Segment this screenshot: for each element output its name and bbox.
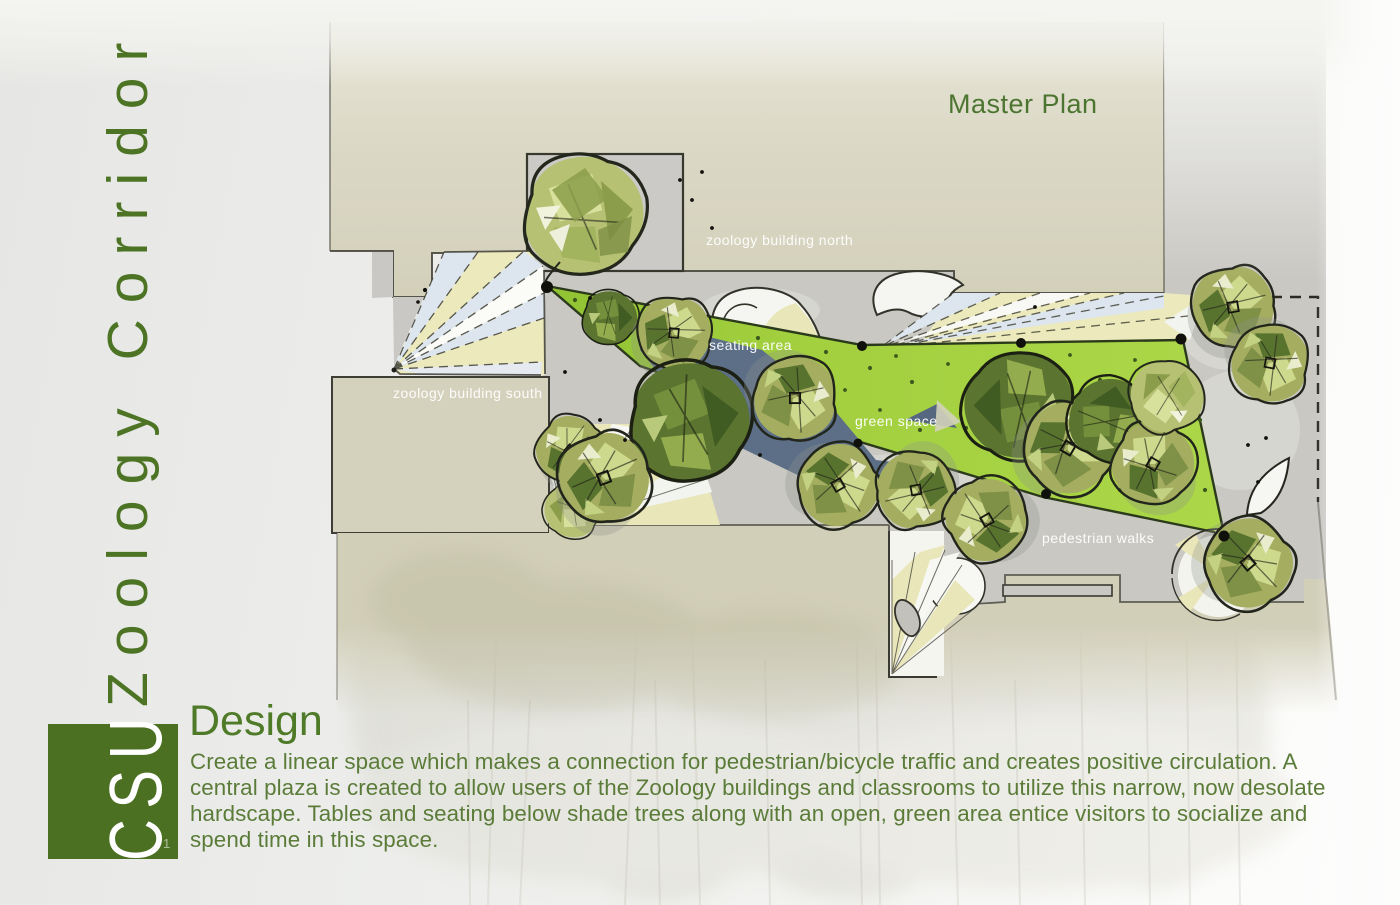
svg-text:zoology building south: zoology building south xyxy=(393,385,543,401)
svg-text:zoology building north: zoology building north xyxy=(706,232,853,248)
svg-text:pedestrian walks: pedestrian walks xyxy=(1042,530,1154,546)
svg-text:green space: green space xyxy=(855,413,938,429)
svg-text:seating area: seating area xyxy=(709,337,792,353)
